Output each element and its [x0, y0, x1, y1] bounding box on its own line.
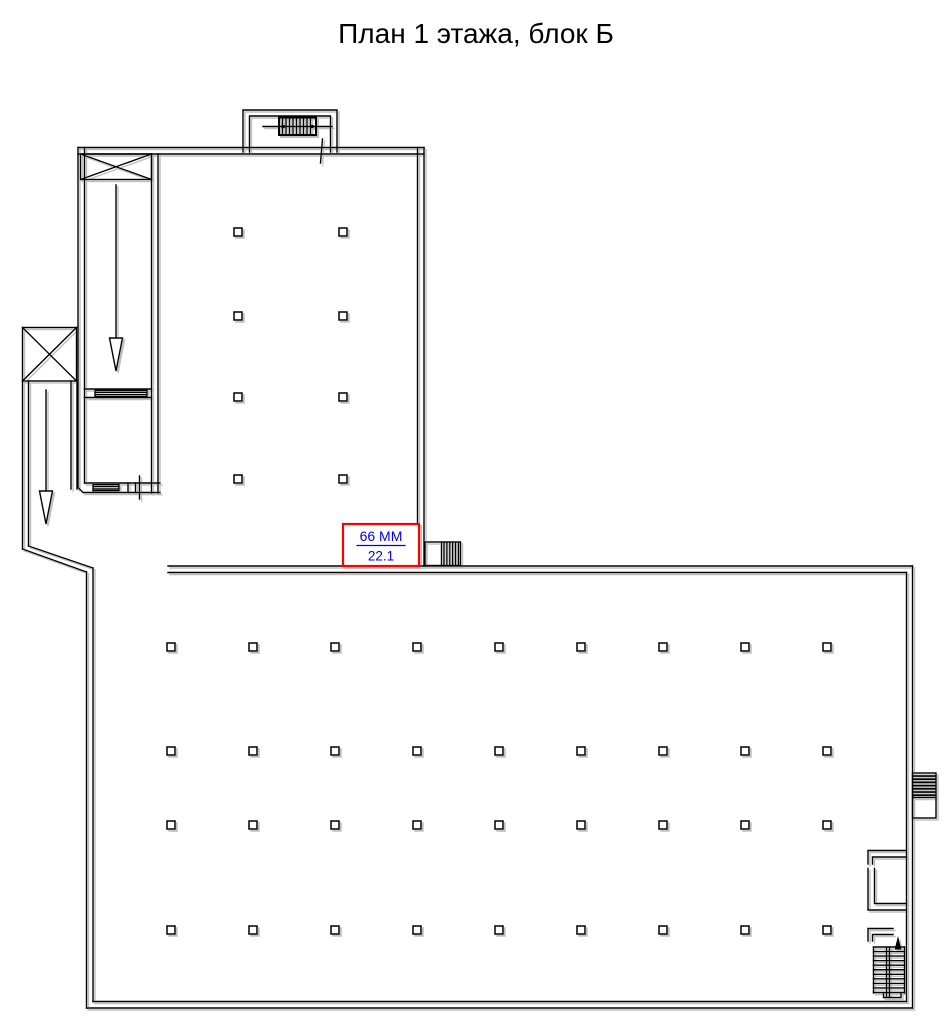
column [167, 747, 175, 755]
hall-left-wall [152, 154, 159, 493]
stair-direction-dot [311, 125, 314, 128]
column [234, 228, 242, 236]
down-arrow-lower [40, 390, 53, 524]
open-arrowhead-down-icon [110, 338, 123, 371]
room-label-area: 22.1 [368, 549, 394, 564]
lower-hall-walls [87, 566, 913, 1008]
door-leaf [93, 485, 119, 491]
corridor-left-wall [78, 148, 85, 488]
column [577, 821, 585, 829]
column [823, 926, 831, 934]
floor-plan-svg: 66 ММ 22.1 [0, 0, 952, 1024]
left-wall [23, 381, 29, 549]
column [823, 821, 831, 829]
column [167, 821, 175, 829]
column [331, 643, 339, 651]
column [577, 926, 585, 934]
hall-right-wall [418, 148, 425, 567]
column [659, 643, 667, 651]
corridor-lower-right-wall [71, 381, 77, 489]
side-dock [913, 773, 937, 818]
room-bottom-right [868, 851, 907, 911]
column [741, 926, 749, 934]
column [234, 393, 242, 401]
column [167, 643, 175, 651]
stair-tower [243, 110, 337, 152]
room-top-hook [868, 851, 907, 865]
stairs-up-arrow-icon [895, 936, 902, 950]
right-wall [907, 566, 913, 1008]
column [249, 747, 257, 755]
crossed-box-x [23, 328, 77, 382]
diagonal-wall [23, 546, 94, 572]
lower-hall-columns [167, 643, 831, 934]
column [413, 821, 421, 829]
column [234, 475, 242, 483]
column [495, 926, 503, 934]
column [823, 643, 831, 651]
open-arrowhead-down-icon [40, 491, 53, 524]
room-label-number: 66 ММ [360, 528, 403, 544]
column [495, 747, 503, 755]
steps-hatch [444, 543, 459, 566]
crossed-box-x [81, 154, 152, 180]
column [339, 312, 347, 320]
elevator-shaft-upper [81, 154, 152, 180]
column [823, 747, 831, 755]
column [331, 926, 339, 934]
column [167, 926, 175, 934]
column [413, 926, 421, 934]
column [741, 821, 749, 829]
column [331, 747, 339, 755]
entrance-steps [425, 542, 461, 566]
column [249, 643, 257, 651]
column [339, 393, 347, 401]
room-l-wall [868, 869, 907, 911]
column [249, 821, 257, 829]
dock-hatch [913, 776, 936, 795]
column [659, 821, 667, 829]
column [339, 475, 347, 483]
stair-direction-dot [282, 125, 285, 128]
stairwell-bottom-right [868, 929, 905, 998]
column [659, 926, 667, 934]
elevator-shaft-lower [23, 328, 77, 382]
top-wall [168, 566, 913, 573]
door-leaf [95, 390, 147, 396]
column [413, 747, 421, 755]
door-leaf-hatch2 [94, 487, 119, 489]
vestibule-bottom-wall [78, 476, 160, 499]
door-leaf-hatch [96, 392, 147, 394]
column [659, 747, 667, 755]
column [495, 821, 503, 829]
column [741, 643, 749, 651]
room-label[interactable]: 66 ММ 22.1 [343, 524, 419, 566]
floor-plan: 66 ММ 22.1 [23, 110, 937, 1008]
column [234, 312, 242, 320]
column [495, 643, 503, 651]
bottom-wall [87, 1002, 913, 1009]
down-arrow-upper [110, 185, 123, 371]
door-tick [321, 139, 323, 163]
upper-hall-columns [234, 228, 347, 483]
column [577, 643, 585, 651]
left-wall [87, 568, 94, 1008]
outer-walls-left [23, 381, 94, 572]
column [249, 926, 257, 934]
column [413, 643, 421, 651]
column [331, 821, 339, 829]
column [577, 747, 585, 755]
top-wall [78, 148, 424, 155]
column [741, 747, 749, 755]
stair-hook [868, 929, 893, 942]
door-upper-corridor [85, 389, 152, 398]
upper-hall-walls [78, 139, 424, 566]
column [339, 228, 347, 236]
